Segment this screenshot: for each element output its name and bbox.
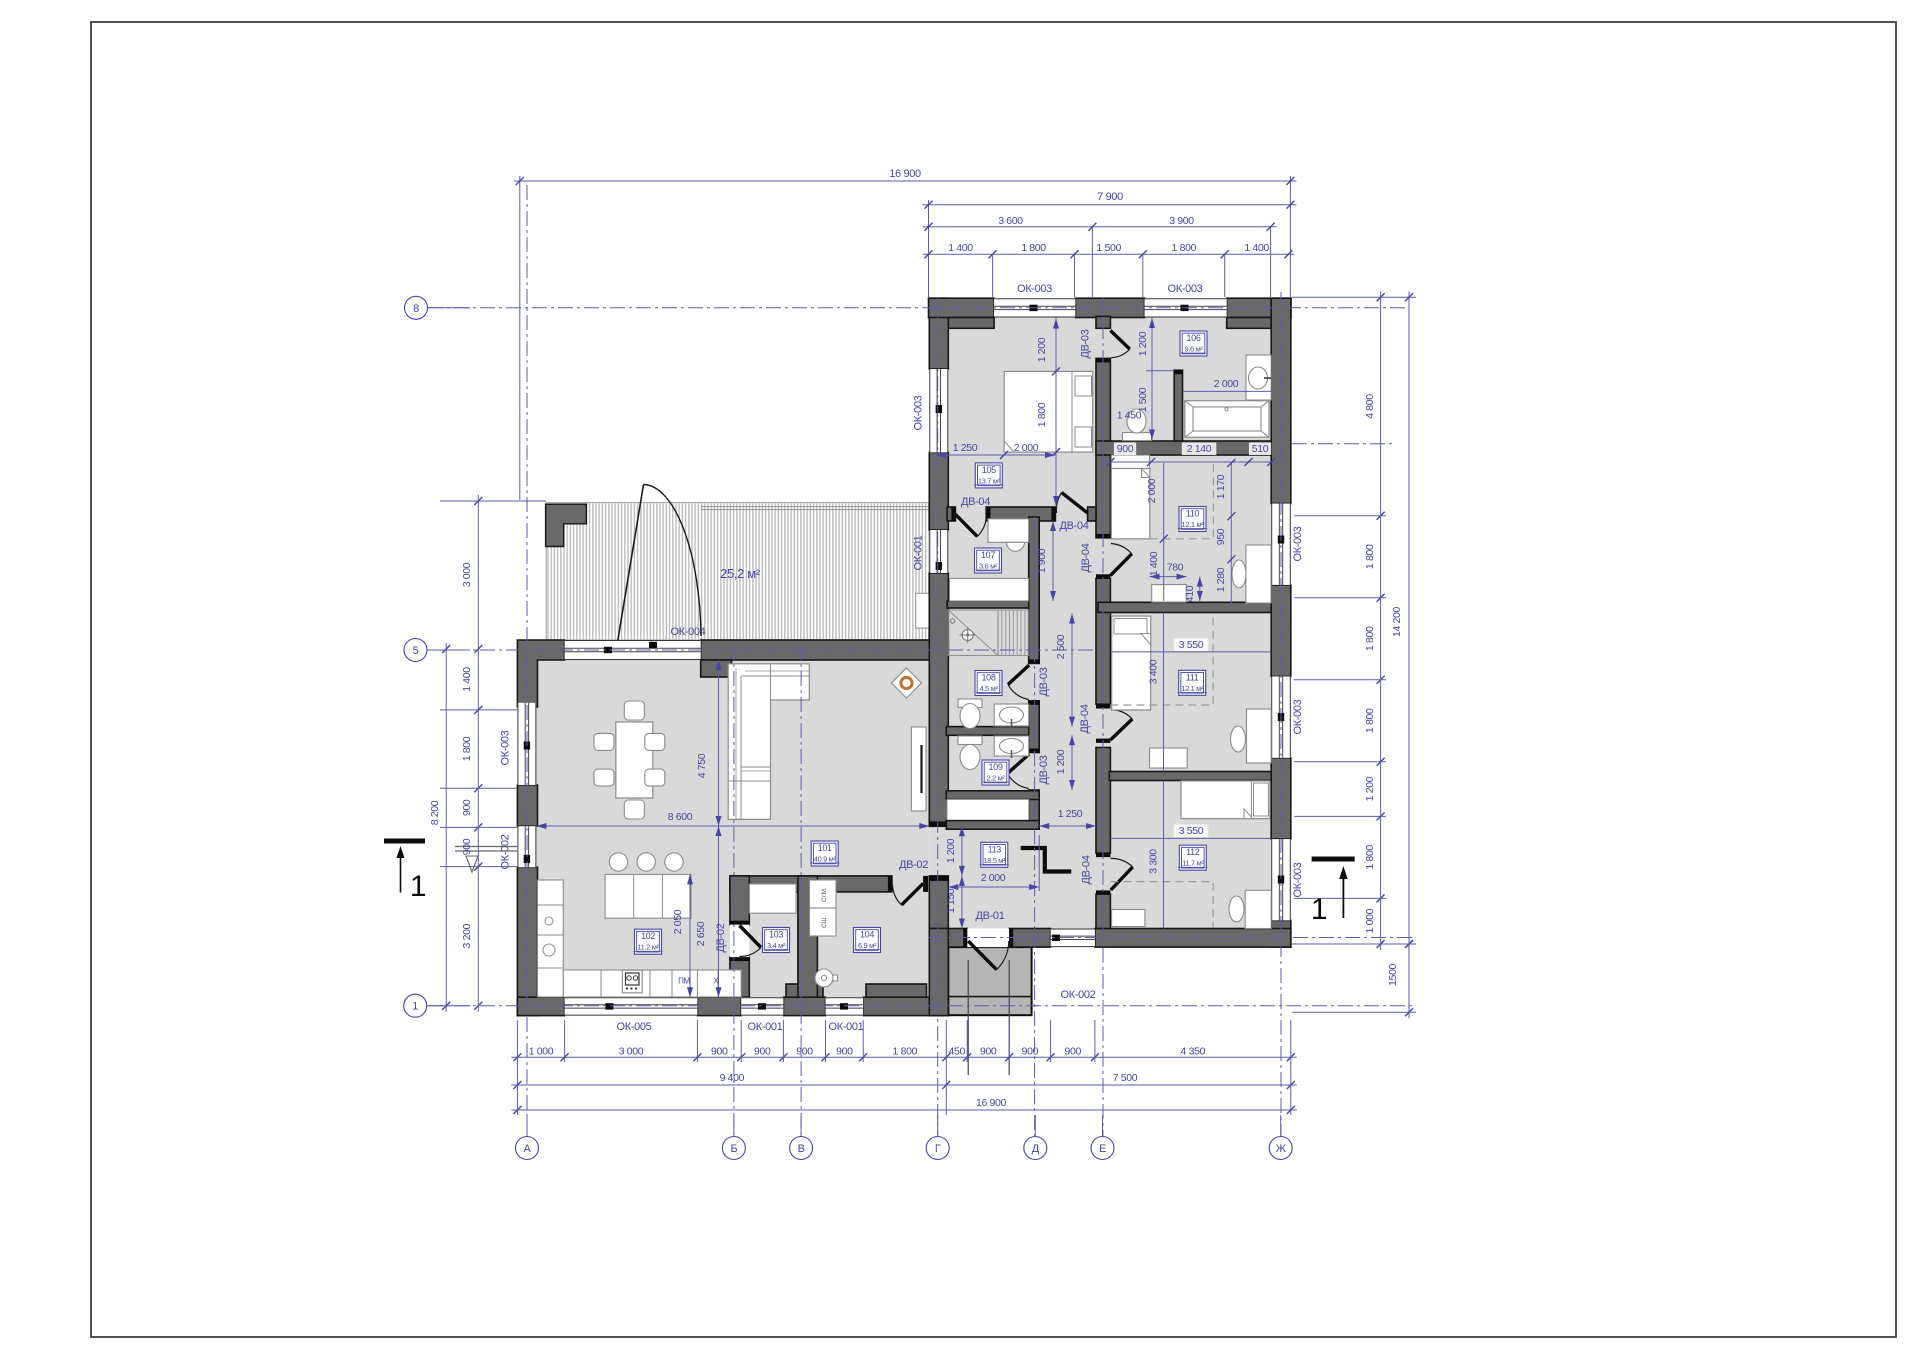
svg-text:1500: 1500 (1387, 964, 1399, 986)
svg-text:1 170: 1 170 (1215, 474, 1227, 499)
svg-text:3 550: 3 550 (1179, 825, 1204, 837)
svg-text:1 800: 1 800 (893, 1045, 918, 1057)
svg-text:ДВ-02: ДВ-02 (715, 923, 727, 952)
svg-text:ОК-003: ОК-003 (1292, 526, 1304, 561)
svg-text:ДВ-02: ДВ-02 (899, 859, 928, 871)
svg-text:4.5 м²: 4.5 м² (979, 684, 998, 693)
svg-text:1: 1 (410, 870, 426, 903)
svg-text:8: 8 (413, 303, 419, 315)
svg-text:104: 104 (860, 930, 874, 940)
svg-text:110: 110 (1186, 509, 1200, 519)
svg-text:1 800: 1 800 (1364, 708, 1376, 733)
svg-text:ОК-002: ОК-002 (500, 834, 512, 869)
svg-text:ОК-003: ОК-003 (1168, 283, 1203, 295)
svg-text:1 900: 1 900 (1036, 548, 1048, 573)
svg-text:ОК-003: ОК-003 (500, 730, 512, 765)
svg-text:1 000: 1 000 (1364, 908, 1376, 933)
svg-text:ДВ-04: ДВ-04 (1080, 543, 1092, 572)
svg-text:Ст.М.: Ст.М. (821, 887, 828, 902)
svg-text:3 200: 3 200 (461, 923, 473, 948)
svg-text:ПМ: ПМ (678, 977, 690, 986)
svg-text:3 400: 3 400 (1148, 659, 1160, 684)
svg-text:900: 900 (461, 799, 473, 816)
svg-text:3 300: 3 300 (1148, 849, 1160, 874)
svg-text:1 800: 1 800 (461, 736, 473, 761)
svg-text:2 140: 2 140 (1187, 443, 1212, 455)
svg-text:1 400: 1 400 (461, 667, 473, 692)
svg-text:В: В (798, 1143, 805, 1155)
svg-text:900: 900 (461, 838, 473, 855)
svg-text:510: 510 (1252, 443, 1269, 455)
svg-text:113: 113 (988, 844, 1002, 854)
svg-text:900: 900 (796, 1045, 813, 1057)
svg-text:ДВ-01: ДВ-01 (976, 910, 1005, 922)
svg-text:1 800: 1 800 (1021, 242, 1046, 254)
svg-text:2 000: 2 000 (1214, 378, 1239, 390)
svg-text:ДВ-03: ДВ-03 (1038, 755, 1050, 784)
svg-text:1 800: 1 800 (1364, 626, 1376, 651)
svg-text:103: 103 (769, 930, 783, 940)
svg-text:ДВ-04: ДВ-04 (961, 496, 990, 508)
svg-text:1 400: 1 400 (1148, 551, 1160, 576)
svg-text:900: 900 (754, 1045, 771, 1057)
svg-text:9.6 м²: 9.6 м² (1184, 345, 1203, 354)
svg-text:2 500: 2 500 (1055, 634, 1067, 659)
svg-text:2 050: 2 050 (672, 909, 684, 934)
svg-text:Г: Г (935, 1143, 941, 1155)
svg-text:1 200: 1 200 (1036, 337, 1048, 362)
svg-text:1: 1 (412, 1001, 418, 1013)
svg-text:106: 106 (1187, 333, 1201, 343)
svg-text:5: 5 (413, 645, 419, 657)
svg-text:2 000: 2 000 (981, 872, 1006, 884)
svg-text:109: 109 (989, 762, 1003, 772)
svg-text:112: 112 (1186, 847, 1200, 857)
svg-text:4 800: 4 800 (1364, 394, 1376, 419)
svg-text:900: 900 (1117, 443, 1134, 455)
svg-text:ОК-005: ОК-005 (617, 1021, 652, 1033)
svg-text:1 400: 1 400 (948, 242, 973, 254)
svg-text:ОК-002: ОК-002 (1061, 989, 1096, 1001)
svg-text:3 600: 3 600 (998, 215, 1023, 227)
svg-text:ОК-003: ОК-003 (1292, 862, 1304, 897)
svg-text:3.6 м²: 3.6 м² (979, 562, 998, 571)
svg-text:6.9 м²: 6.9 м² (858, 941, 877, 950)
svg-text:1 800: 1 800 (1364, 544, 1376, 569)
svg-text:3 550: 3 550 (1179, 639, 1204, 651)
svg-text:950: 950 (1215, 528, 1227, 545)
svg-text:12.1 м²: 12.1 м² (1181, 684, 1204, 693)
svg-text:7 900: 7 900 (1097, 191, 1123, 203)
svg-text:900: 900 (1065, 1045, 1082, 1057)
svg-text:1 800: 1 800 (1036, 402, 1048, 427)
svg-text:ОК-001: ОК-001 (748, 1021, 783, 1033)
svg-text:1 200: 1 200 (1137, 331, 1149, 356)
svg-text:Д: Д (1032, 1143, 1040, 1155)
svg-text:1 500: 1 500 (1096, 242, 1121, 254)
svg-text:3.4 м²: 3.4 м² (767, 941, 786, 950)
svg-text:102: 102 (641, 931, 655, 941)
svg-text:25,2 м²: 25,2 м² (720, 566, 761, 581)
svg-text:3 000: 3 000 (461, 562, 473, 587)
svg-text:11.7 м²: 11.7 м² (1182, 859, 1204, 868)
svg-text:Е: Е (1099, 1143, 1106, 1155)
svg-text:111: 111 (1186, 672, 1199, 682)
svg-text:1 200: 1 200 (1055, 749, 1067, 774)
svg-text:ОК-003: ОК-003 (913, 395, 925, 430)
svg-text:ДВ-03: ДВ-03 (1080, 329, 1092, 358)
svg-text:Ж: Ж (1276, 1143, 1286, 1155)
svg-text:12.1 м²: 12.1 м² (1182, 520, 1205, 529)
svg-text:900: 900 (980, 1045, 997, 1057)
svg-text:1: 1 (1311, 893, 1327, 926)
svg-text:8 600: 8 600 (668, 811, 693, 823)
svg-text:1 280: 1 280 (1215, 567, 1227, 592)
svg-text:105: 105 (982, 465, 996, 475)
svg-text:1 000: 1 000 (529, 1045, 554, 1057)
svg-text:ДВ-04: ДВ-04 (1060, 520, 1089, 532)
svg-text:ДВ-03: ДВ-03 (1038, 667, 1050, 696)
svg-text:410: 410 (1184, 585, 1196, 602)
svg-text:2.2 м²: 2.2 м² (986, 774, 1005, 783)
svg-text:780: 780 (1167, 562, 1184, 574)
svg-text:1 150: 1 150 (945, 888, 957, 913)
svg-text:1 200: 1 200 (945, 838, 957, 863)
svg-text:1 450: 1 450 (1117, 410, 1142, 422)
svg-text:ОК-001: ОК-001 (829, 1021, 864, 1033)
svg-text:13.7 м²: 13.7 м² (978, 476, 1001, 485)
svg-text:14 200: 14 200 (1391, 606, 1403, 637)
svg-text:900: 900 (711, 1045, 728, 1057)
svg-text:4 350: 4 350 (1181, 1045, 1206, 1057)
svg-text:ДВ-04: ДВ-04 (1079, 704, 1091, 733)
svg-text:11.2 м²: 11.2 м² (637, 943, 659, 952)
svg-text:8 200: 8 200 (429, 800, 441, 825)
svg-text:2 000: 2 000 (1146, 478, 1158, 503)
svg-text:2 650: 2 650 (695, 921, 707, 946)
svg-text:3 000: 3 000 (619, 1045, 644, 1057)
svg-text:900: 900 (836, 1045, 853, 1057)
svg-text:16 900: 16 900 (976, 1097, 1007, 1109)
svg-text:1 500: 1 500 (1137, 387, 1149, 412)
svg-text:1 800: 1 800 (1172, 242, 1197, 254)
svg-text:1 250: 1 250 (953, 442, 978, 454)
svg-text:101: 101 (818, 843, 832, 853)
svg-text:7 500: 7 500 (1113, 1072, 1138, 1084)
svg-text:450: 450 (949, 1045, 966, 1057)
svg-text:ОК-003: ОК-003 (1292, 699, 1304, 734)
svg-text:108: 108 (982, 673, 996, 683)
svg-text:Б: Б (730, 1143, 737, 1155)
svg-text:ОК-003: ОК-003 (1017, 283, 1052, 295)
svg-text:1 250: 1 250 (1058, 808, 1083, 820)
svg-text:40.9 м²: 40.9 м² (814, 855, 837, 864)
svg-text:3 900: 3 900 (1169, 215, 1194, 227)
svg-text:А: А (524, 1143, 532, 1155)
svg-text:1 800: 1 800 (1364, 845, 1376, 870)
svg-text:СШ: СШ (821, 918, 828, 928)
svg-text:107: 107 (981, 550, 995, 560)
svg-text:ДВ-04: ДВ-04 (1081, 855, 1093, 884)
svg-text:18.5 м²: 18.5 м² (983, 856, 1006, 865)
svg-text:1 400: 1 400 (1244, 242, 1269, 254)
svg-text:ОК-001: ОК-001 (913, 535, 925, 570)
svg-text:2 000: 2 000 (1014, 442, 1039, 454)
svg-text:1 200: 1 200 (1364, 776, 1376, 801)
svg-text:9 400: 9 400 (720, 1072, 745, 1084)
svg-text:16 900: 16 900 (889, 168, 921, 180)
svg-text:900: 900 (1022, 1045, 1039, 1057)
svg-text:4 750: 4 750 (696, 753, 708, 778)
